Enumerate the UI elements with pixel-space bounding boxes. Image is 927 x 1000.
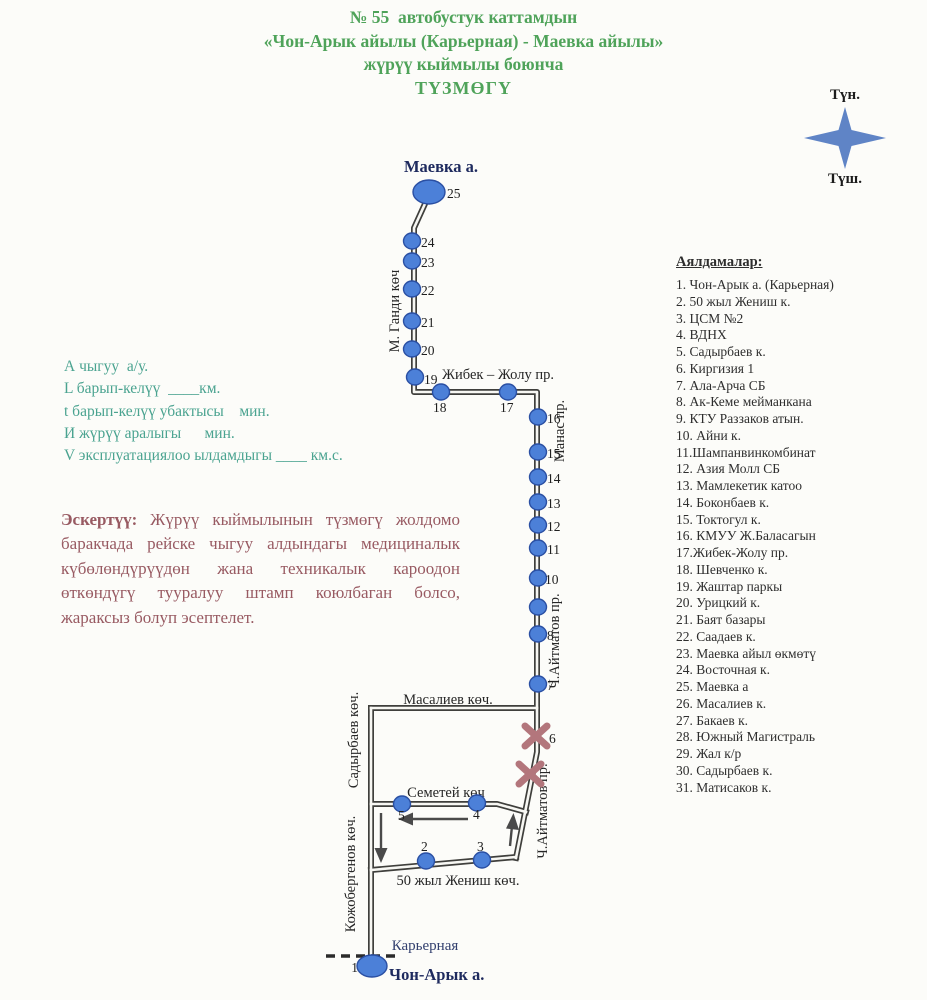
stop-number: 24 [421,235,435,250]
street-label: Кожобергенов көч. [343,816,359,933]
stop-number: 10 [545,572,559,587]
stop-marker [404,313,421,329]
stop-number: 8 [547,628,554,643]
stop-number: 19 [424,372,438,387]
street-label: Маевка а. [404,157,478,176]
stop-marker [433,384,450,400]
stop-number: 22 [421,283,435,298]
street-label: Жибек – Жолу пр. [442,367,554,383]
stop-marker [530,599,547,615]
stop-number: 13 [547,496,561,511]
stop-marker [404,341,421,357]
stop-marker [407,369,424,385]
stop-number: 4 [473,807,480,822]
stop-marker [404,281,421,297]
stop-marker [530,469,547,485]
stop-number: 1 [351,960,358,975]
stop-marker [530,494,547,510]
stop-marker [530,540,547,556]
route-scheme-page: № 55 автобустук каттамдын «Чон-Арык айыл… [0,0,927,1000]
stop-marker [530,570,547,586]
street-label: М. Ганди көч [387,270,403,353]
stop-number: 2 [421,839,428,854]
street-label: Садырбаев көч. [346,692,362,788]
stop-number: 17 [500,400,514,415]
stop-number: 18 [433,400,447,415]
stop-marker [404,233,421,249]
street-label: 50 жыл Жениш көч. [397,873,520,889]
stop-number: 15 [547,446,561,461]
stop-marker [530,409,547,425]
stop-marker [418,853,435,869]
street-label: Чон-Арык а. [389,965,484,984]
stop-number: 5 [398,808,405,823]
stop-marker [530,676,547,692]
stop-number: 25 [447,186,461,201]
stop-number: 11 [547,542,560,557]
stop-marker [530,626,547,642]
stop-number: 16 [547,411,561,426]
street-label: Масалиев көч. [403,692,493,708]
stop-marker [500,384,517,400]
stop-number: 14 [547,471,561,486]
stop-number: 21 [421,315,435,330]
stop-number: 7 [547,678,554,693]
stop-marker [474,852,491,868]
stop-marker [413,180,445,204]
stop-number: 6 [549,731,556,746]
stop-marker [404,253,421,269]
stop-number: 12 [547,519,561,534]
stop-number: 23 [421,255,435,270]
stop-number: 3 [477,839,484,854]
stop-marker [530,444,547,460]
street-label: Карьерная [392,938,459,954]
direction-arrows [375,813,520,864]
route-map: Маевка а.М. Ганди көчЖибек – Жолу пр.Ман… [0,0,927,1000]
stop-number: 20 [421,343,435,358]
stop-marker [357,955,387,977]
stop-marker [530,517,547,533]
